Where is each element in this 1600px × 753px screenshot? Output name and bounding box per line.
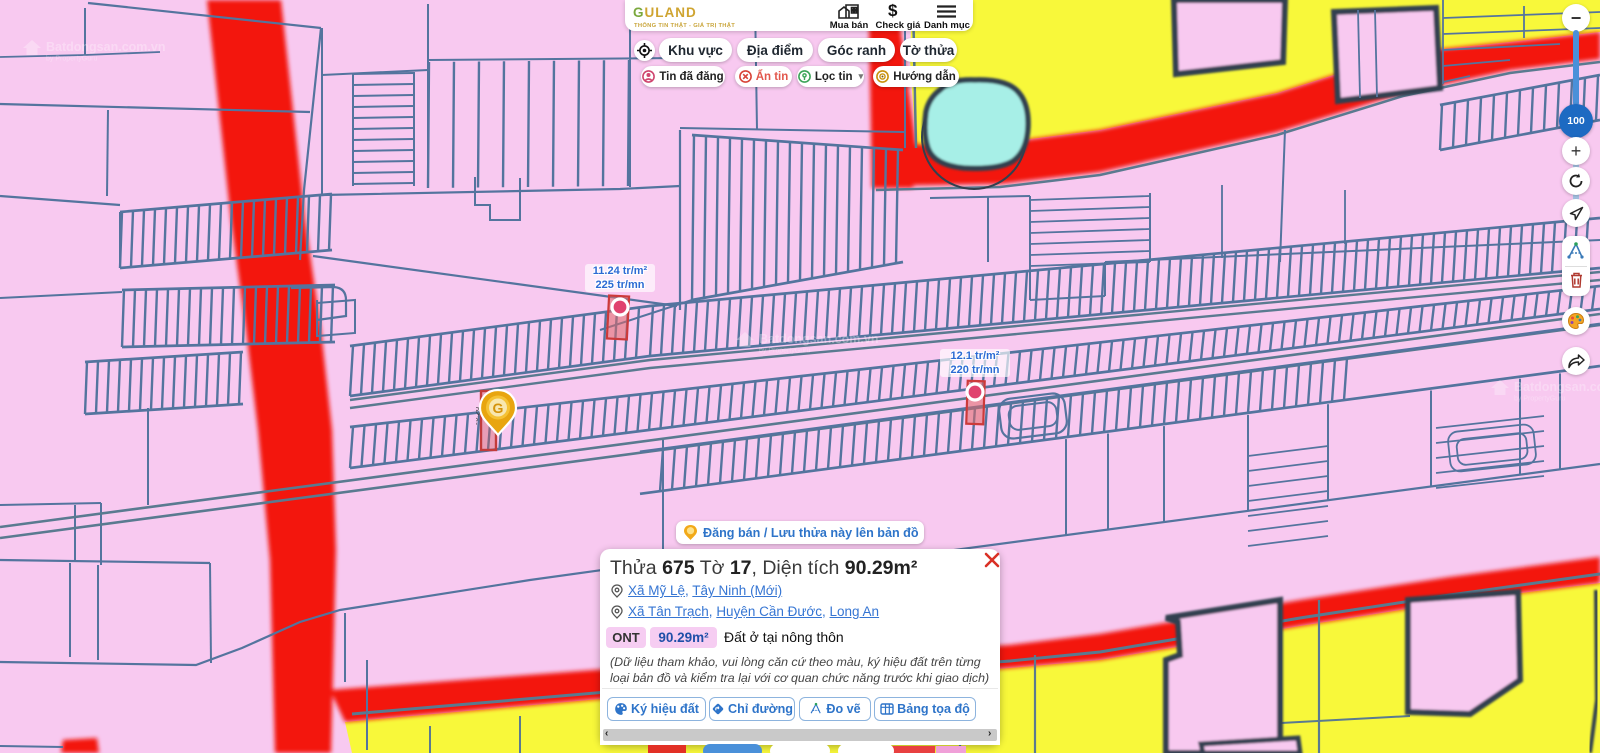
svg-text:by PropertyGuru: by PropertyGuru xyxy=(1514,396,1565,403)
svg-text:Batdongsan.com.vn: Batdongsan.com.vn xyxy=(759,332,878,346)
svg-text:Batdongsan.com.vn: Batdongsan.com.vn xyxy=(1514,380,1600,394)
svg-text:by PropertyGuru: by PropertyGuru xyxy=(759,348,810,355)
svg-text:Batdongsan.com.vn: Batdongsan.com.vn xyxy=(46,40,165,54)
svg-text:by PropertyGuru: by PropertyGuru xyxy=(46,56,97,63)
svg-text:G: G xyxy=(493,400,504,416)
